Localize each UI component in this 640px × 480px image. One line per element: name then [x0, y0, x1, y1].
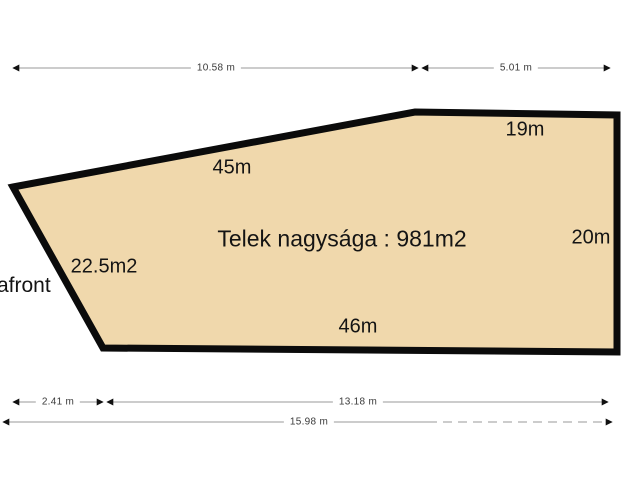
- edge-label-bottom: 46m: [339, 316, 378, 339]
- edge-label-right: 20m: [572, 227, 611, 250]
- dimension-label-bottom-mid: 13.18 m: [333, 397, 383, 408]
- dimension-label-bottom-left: 2.41 m: [36, 397, 80, 408]
- dimension-label-top-left: 10.58 m: [191, 63, 241, 74]
- edge-label-top-sloped: 45m: [213, 157, 252, 180]
- edge-label-top: 19m: [506, 119, 545, 142]
- street-front-label: afront: [0, 274, 51, 298]
- dimension-label-top-right: 5.01 m: [494, 63, 538, 74]
- dimension-label-bottom-total: 15.98 m: [284, 417, 334, 428]
- plot-size-title: Telek nagysága : 981m2: [217, 226, 466, 253]
- area-label-left: 22.5m2: [71, 256, 138, 279]
- plot-diagram: 10.58 m 5.01 m 2.41 m 13.18 m 15.98 m 45…: [0, 0, 640, 480]
